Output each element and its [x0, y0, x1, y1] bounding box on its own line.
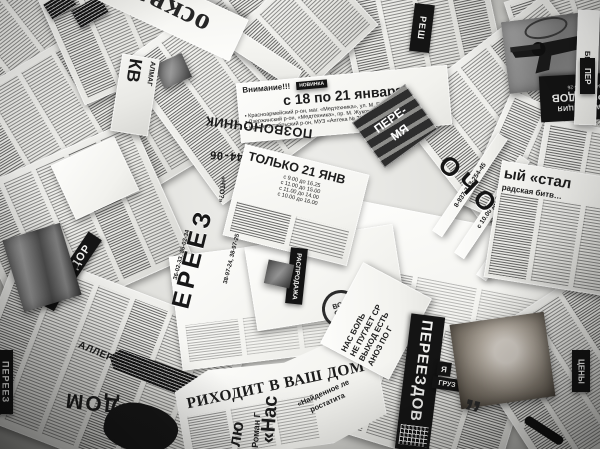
pereez-edge-label: ПЕРЕЕЗ — [0, 350, 13, 414]
text-column — [488, 193, 538, 280]
text-columns — [488, 193, 600, 293]
ya-label: Я — [436, 361, 452, 377]
text-column — [185, 319, 242, 362]
newspaper-collage: осква КВ АЛМАГ Внимание!!! НОВИНКА с 18 … — [0, 0, 600, 449]
small-photo — [264, 260, 294, 289]
tseny-label: ЦЕНЫ — [572, 350, 590, 392]
per-label: ПЕР — [580, 58, 595, 94]
text-column — [531, 199, 581, 286]
banner-grid — [398, 424, 428, 447]
stal-scrap: ый «стал радская битв… — [484, 160, 600, 297]
nas-headline: «Нас — [257, 395, 283, 444]
pereezdov-text: ПЕРЕЕЗДОВ — [407, 319, 436, 423]
